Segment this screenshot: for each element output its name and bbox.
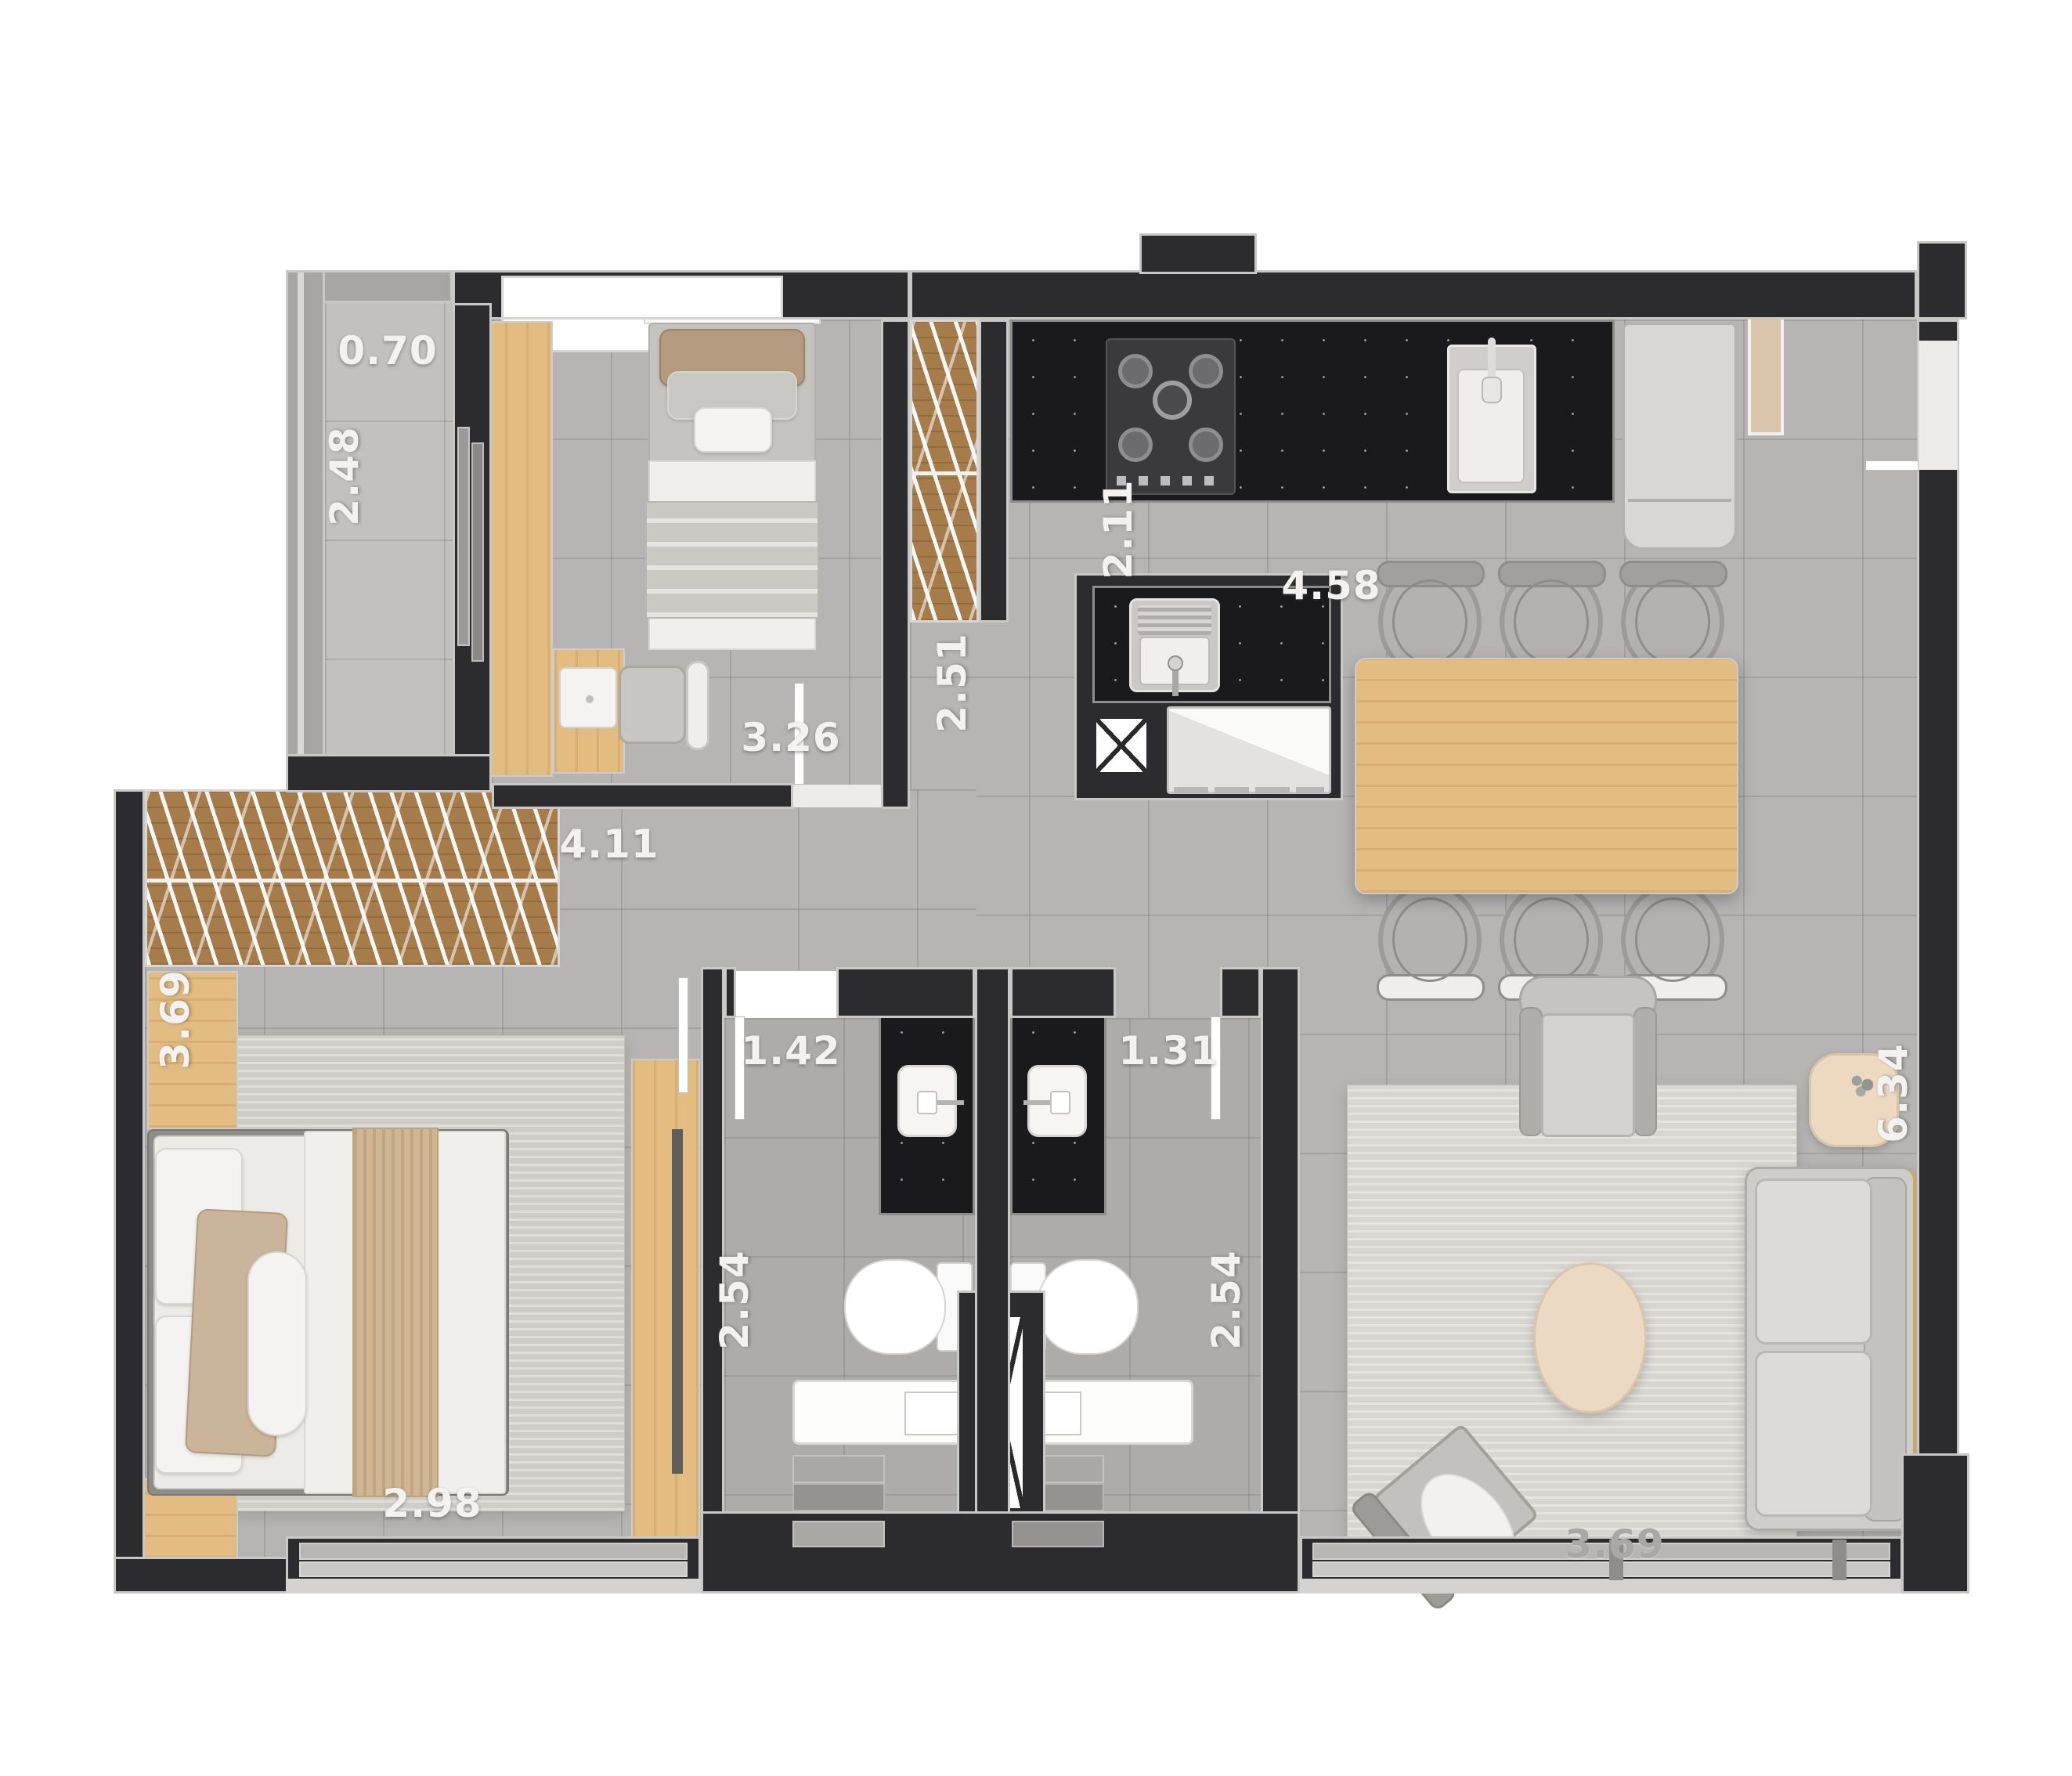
refrigerator-door-line xyxy=(1628,499,1731,502)
wall-bath1-top xyxy=(724,967,736,1018)
wall-bath2-top2 xyxy=(1220,967,1261,1018)
shaft-kitchen-icon xyxy=(1093,716,1150,775)
dim-hall-width: 4.11 xyxy=(559,821,659,867)
desk-chair xyxy=(619,661,709,750)
toilet xyxy=(844,1259,973,1355)
faucet-icon xyxy=(1023,1100,1050,1105)
refrigerator xyxy=(1623,323,1737,550)
pantry-cabinet xyxy=(1748,312,1784,435)
dim-bath2-width: 1.31 xyxy=(1118,1028,1218,1074)
floor-plan: 0.70 2.48 3.26 2.51 2.11 4.58 6.34 4.11 … xyxy=(0,0,2072,1776)
bedroom2-wardrobe-panel xyxy=(482,321,553,777)
wall-bath-central xyxy=(975,967,1010,1515)
desk-chair-back xyxy=(686,661,709,750)
wall-top-right-corner xyxy=(1917,241,1967,319)
desk-chair-seat xyxy=(619,666,686,744)
window-sill xyxy=(792,1483,885,1511)
chair-seat xyxy=(1392,897,1467,982)
burner-icon xyxy=(1189,354,1223,388)
laundry-sink-ridges xyxy=(1138,605,1211,635)
sliding-glass-door xyxy=(457,427,470,646)
service-door-opening xyxy=(1919,341,1958,470)
chair-seat xyxy=(1635,579,1710,664)
faucet-icon xyxy=(1050,1091,1070,1114)
dim-balcony-length: 2.48 xyxy=(322,426,367,525)
slat-divider xyxy=(147,879,558,883)
burner-icon xyxy=(1118,354,1153,388)
kitchen-slat-cabinet xyxy=(910,319,979,623)
coffee-table xyxy=(1533,1262,1647,1413)
pillow xyxy=(694,407,772,453)
wall-top-bump xyxy=(1139,233,1257,274)
laptop-logo xyxy=(586,695,594,703)
dim-kitchen-width: 4.58 xyxy=(1281,563,1381,608)
single-bed xyxy=(648,307,816,656)
bed-blanket xyxy=(645,501,819,619)
dining-table xyxy=(1355,658,1738,894)
wall-balcony-bottom xyxy=(286,754,492,792)
living-window-band xyxy=(1300,1579,1903,1594)
dim-master-width: 2.98 xyxy=(382,1481,482,1526)
toilet-bowl xyxy=(844,1259,946,1355)
wall-bottom-left-corner xyxy=(114,1557,290,1594)
kitchen-sink xyxy=(1447,345,1536,493)
dim-living-width: 3.69 xyxy=(1565,1522,1664,1567)
burner-icon xyxy=(1118,428,1153,462)
faucet-icon xyxy=(917,1091,937,1114)
sofa-seat-cushion xyxy=(1755,1351,1872,1517)
wall-bath-bottom xyxy=(701,1511,1300,1594)
window-sill xyxy=(792,1455,885,1483)
dim-kitchen-depth: 2.11 xyxy=(1096,479,1141,579)
dim-living-length: 6.34 xyxy=(1871,1043,1916,1142)
master-window-band xyxy=(286,1579,701,1594)
sofa xyxy=(1745,1167,1917,1531)
window-mullion xyxy=(1832,1540,1846,1580)
chair-seat xyxy=(1392,579,1467,664)
wall-right xyxy=(1917,319,1959,1558)
kitchen-cabinet-side-wall xyxy=(979,319,1009,623)
burner-icon xyxy=(1153,381,1192,420)
slat-divider xyxy=(912,471,976,475)
wall-left xyxy=(114,789,145,1594)
bedroom2-window-glass xyxy=(501,276,783,319)
bathroom1-sink xyxy=(897,1065,957,1137)
wall-bath2-right xyxy=(1261,967,1300,1515)
cooktop xyxy=(1106,338,1236,495)
armchair-seat xyxy=(1541,1013,1635,1137)
wall-bath2-top xyxy=(1010,967,1116,1018)
armchair-arm xyxy=(1519,1007,1543,1136)
laundry-sink xyxy=(1129,598,1220,692)
dim-bedroom2-width: 3.26 xyxy=(741,715,840,760)
master-window-band xyxy=(299,1561,688,1577)
wardrobe-handle-groove xyxy=(672,1129,683,1474)
laptop xyxy=(559,667,617,728)
shower-shelf xyxy=(904,1392,961,1435)
wall-bedroom2-right xyxy=(881,319,910,809)
wall-bottom-right-corner xyxy=(1901,1453,1969,1594)
wall-bath1-top2 xyxy=(836,967,975,1018)
master-door-leaf xyxy=(678,977,688,1093)
toilet-bowl xyxy=(1037,1259,1139,1355)
washing-machine xyxy=(1167,706,1331,794)
shower-tray xyxy=(792,1380,974,1445)
wall-bath1-left xyxy=(701,967,724,1515)
dim-bath1-depth: 2.54 xyxy=(712,1250,757,1349)
window-sill xyxy=(1012,1521,1104,1547)
master-wardrobe-panel xyxy=(631,1059,700,1557)
bathroom2-sink xyxy=(1027,1065,1087,1137)
dim-bedroom2-depth: 2.51 xyxy=(930,633,975,732)
window-sill xyxy=(792,1521,885,1547)
burner-icon xyxy=(1189,428,1223,462)
chair-seat xyxy=(1635,897,1710,982)
master-wardrobe xyxy=(145,789,560,967)
bed-runner xyxy=(352,1128,439,1497)
balcony-railing xyxy=(286,270,325,757)
dim-balcony-width: 0.70 xyxy=(338,328,437,374)
dining-chair xyxy=(1378,883,1482,996)
bedroom2-door-opening xyxy=(793,785,881,807)
sliding-glass-door xyxy=(471,442,484,662)
faucet-icon xyxy=(1482,377,1502,403)
dim-bath2-depth: 2.54 xyxy=(1204,1250,1249,1349)
armchair-arm xyxy=(1633,1007,1657,1136)
washer-vents xyxy=(1174,787,1324,793)
pillow xyxy=(247,1251,307,1436)
sofa-seat-cushion xyxy=(1755,1179,1872,1345)
master-window-band xyxy=(299,1543,688,1560)
wall-bedroom2-bottom xyxy=(492,783,793,809)
dim-master-depth: 3.69 xyxy=(153,969,198,1069)
wall-top-kitchen xyxy=(910,270,1917,319)
floor-plan-page: { "plan": { "type": "apartment-floor-pla… xyxy=(0,0,2072,1776)
armchair xyxy=(1519,976,1657,1142)
chair-seat xyxy=(1514,897,1589,982)
faucet-icon xyxy=(1168,655,1183,671)
double-bed xyxy=(147,1129,509,1496)
service-door-leaf xyxy=(1865,460,1919,471)
faucet-icon xyxy=(937,1100,964,1105)
chair-seat xyxy=(1514,579,1589,664)
dim-bath1-width: 1.42 xyxy=(741,1028,840,1074)
